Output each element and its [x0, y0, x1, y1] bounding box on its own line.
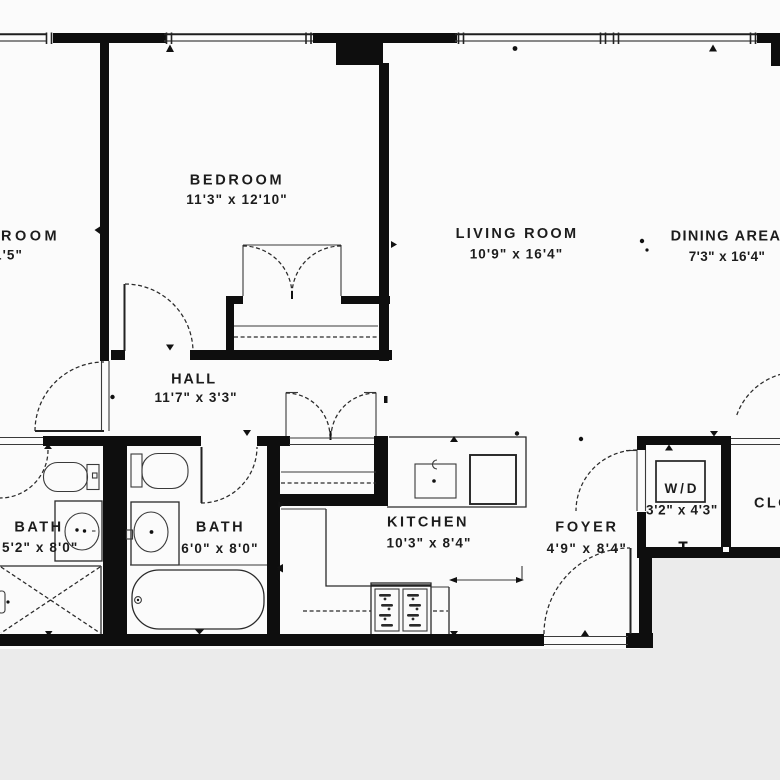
svg-text:DINING AREA: DINING AREA	[671, 229, 780, 245]
svg-text:BATH: BATH	[14, 520, 63, 536]
svg-text:LIVING ROOM: LIVING ROOM	[456, 226, 579, 242]
svg-text:1'5": 1'5"	[0, 248, 23, 263]
svg-text:W/D: W/D	[665, 481, 700, 496]
svg-text:10'3" x 8'4": 10'3" x 8'4"	[387, 536, 472, 551]
svg-text:7'3" x 16'4": 7'3" x 16'4"	[689, 249, 766, 264]
svg-text:HALL: HALL	[171, 372, 217, 388]
svg-text:11'7" x 3'3": 11'7" x 3'3"	[154, 390, 237, 405]
svg-text:ROOM: ROOM	[1, 229, 60, 245]
svg-text:CLO: CLO	[754, 496, 780, 512]
svg-text:10'9" x 16'4": 10'9" x 16'4"	[470, 247, 564, 262]
svg-text:5'2" x 8'0": 5'2" x 8'0"	[2, 540, 78, 555]
svg-text:6'0" x 8'0": 6'0" x 8'0"	[181, 541, 258, 556]
svg-text:KITCHEN: KITCHEN	[387, 515, 469, 531]
svg-text:3'2" x 4'3": 3'2" x 4'3"	[646, 503, 718, 518]
svg-text:BATH: BATH	[196, 520, 245, 536]
svg-text:FOYER: FOYER	[555, 520, 618, 536]
svg-text:11'3" x 12'10": 11'3" x 12'10"	[186, 192, 287, 207]
svg-text:4'9" x 8'4": 4'9" x 8'4"	[547, 541, 628, 556]
svg-text:BEDROOM: BEDROOM	[190, 173, 285, 189]
